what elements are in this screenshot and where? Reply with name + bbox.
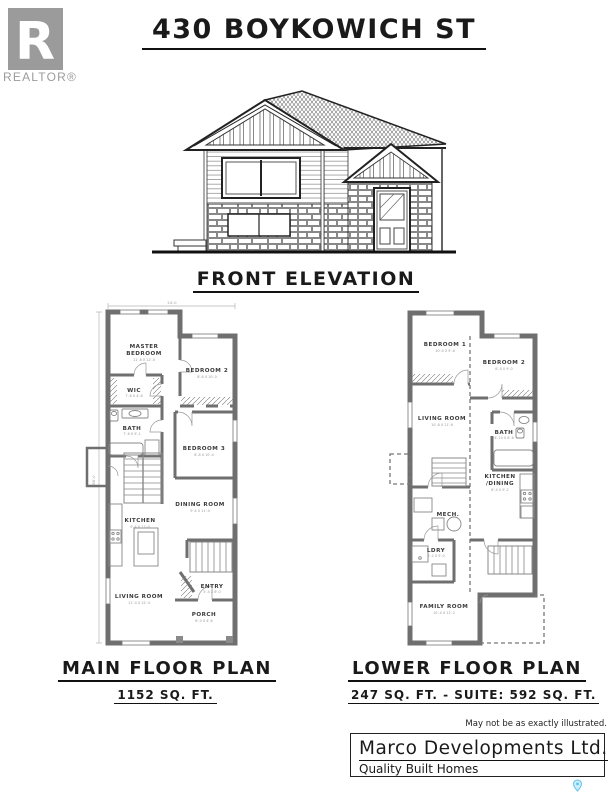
label-bedroom2: BEDROOM 2 [186,368,228,374]
disclaimer-text: May not be as exactly illustrated. [345,719,607,729]
corner-trim-right [321,146,324,252]
stairs-up [124,453,162,503]
svg-text:4'-10 X 8'-6: 4'-10 X 8'-6 [494,436,514,440]
front-steps [174,240,206,252]
main-floor-plan-title: MAIN FLOOR PLAN [58,658,276,682]
label-dining: DINING ROOM [175,502,225,508]
front-door [374,188,410,252]
svg-text:10'-4 X 11'-2: 10'-4 X 11'-2 [433,611,455,615]
svg-text:5'-4 X 6'-0: 5'-4 X 6'-0 [203,590,220,594]
svg-text:9'-4 X 11'-0: 9'-4 X 11'-0 [190,509,210,513]
stairs-down [190,542,232,572]
lower-floor-plan-title: LOWER FLOOR PLAN [348,658,586,682]
lower-floor-plan-area: 247 SQ. FT. - SUITE: 592 SQ. FT. [348,688,599,704]
builder-box: Marco Developments Ltd. Quality Built Ho… [350,733,605,777]
page-title: 430 BOYKOWICH ST [138,14,490,50]
label-l-mech: MECH. [437,512,460,518]
builder-name: Marco Developments Ltd. [359,738,608,761]
svg-text:56'-0: 56'-0 [92,475,96,485]
svg-text:8'-4 X 9'-2: 8'-4 X 9'-2 [491,488,508,492]
svg-text:7'-6 X 4'-8: 7'-6 X 4'-8 [125,394,142,398]
main-floor-plan-caption: MAIN FLOOR PLAN 1152 SQ. FT. [58,658,273,704]
main-plan-labels: 24'-0 56'-0 MASTER BEDROOM 11'-6 X 12'-0… [92,301,228,623]
svg-text:10'-4 X 9'-6: 10'-4 X 9'-6 [435,349,455,353]
svg-text:24'-0: 24'-0 [167,301,177,305]
builder-tagline: Quality Built Homes [359,762,604,776]
svg-text:11'-4 X 12'-4: 11'-4 X 12'-4 [128,601,150,605]
label-bedroom3: BEDROOM 3 [183,446,225,452]
front-elevation-drawing [148,82,464,266]
lower-floor-plan-caption: LOWER FLOOR PLAN 247 SQ. FT. - SUITE: 59… [348,658,573,704]
label-living: LIVING ROOM [115,594,163,600]
lower-floor-plan-drawing: BEDROOM 1 10'-4 X 9'-6 BEDROOM 2 8'-4 X … [388,302,548,654]
svg-text:11'-6 X 12'-0: 11'-6 X 12'-0 [133,358,155,362]
label-kitchen: KITCHEN [124,518,155,524]
map-pin-icon[interactable] [572,779,583,792]
page-title-text: 430 BOYKOWICH ST [142,14,486,50]
label-master-2: BEDROOM [126,351,162,357]
realtor-wordmark: REALTOR® [3,70,75,84]
svg-text:8'-8 X 10'-0: 8'-8 X 10'-0 [197,375,217,379]
realtor-logo: R [8,8,63,70]
svg-text:7'-6 X 9'-1: 7'-6 X 9'-1 [123,432,140,436]
realtor-logo-r: R [15,12,55,70]
closet-hatch-lower [411,374,534,398]
svg-text:9'-4 X 11'-0: 9'-4 X 11'-0 [130,525,150,529]
svg-text:8'-4 X 9'-0: 8'-4 X 9'-0 [495,367,512,371]
kitchen-fixtures-lower [520,474,534,518]
svg-text:8'-8 X 10'-4: 8'-8 X 10'-4 [194,453,214,457]
realtor-wordmark-text: REALTOR® [3,70,77,84]
main-window [222,158,300,198]
label-l-kitchen-1: KITCHEN [484,474,515,480]
main-floor-plan-area: 1152 SQ. FT. [114,688,216,704]
label-l-living: LIVING ROOM [418,416,466,422]
svg-text:10'-8 X 11'-6: 10'-8 X 11'-6 [431,423,453,427]
label-l-family: FAMILY ROOM [420,604,469,610]
listing-sheet-page: R REALTOR® 430 BOYKOWICH ST [0,0,612,792]
label-l-bedroom2: BEDROOM 2 [483,360,525,366]
basement-window [228,214,290,236]
svg-text:6'-0 X 4'-6: 6'-0 X 4'-6 [195,619,212,623]
label-porch: PORCH [192,612,216,618]
svg-text:5'-2 X 5'-0: 5'-2 X 5'-0 [427,554,444,558]
kitchen-fixtures [109,504,158,566]
main-floor-plan-drawing: 24'-0 56'-0 MASTER BEDROOM 11'-6 X 12'-0… [82,300,260,656]
label-l-kitchen-2: /DINING [486,481,514,487]
front-elevation-caption-text: FRONT ELEVATION [193,268,420,293]
label-master-1: MASTER [130,344,159,350]
label-l-bedroom1: BEDROOM 1 [424,342,466,348]
front-elevation-caption: FRONT ELEVATION [186,268,426,293]
corner-trim-left [204,146,207,252]
